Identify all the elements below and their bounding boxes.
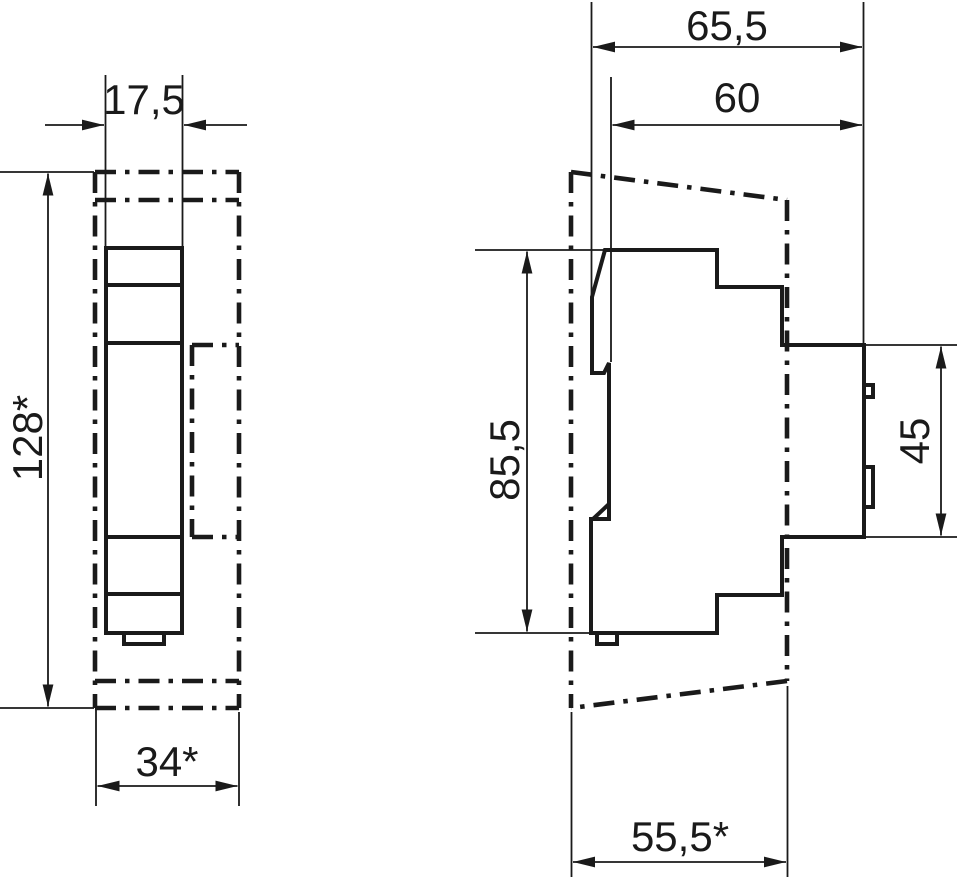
dim-label-height-front: 45 (891, 418, 938, 465)
dim-side-height-body: 85,5 (475, 250, 604, 633)
din-clip-lower-hook (593, 504, 609, 519)
front-device-outline (106, 248, 182, 644)
dim-front-width-bottom: 34* (96, 700, 239, 806)
dim-label-depth-bottom: 55,5* (631, 813, 729, 860)
envelope-bottom-slant-line (571, 681, 787, 708)
device-body (106, 248, 182, 633)
envelope-top-slant-line (571, 172, 787, 200)
dim-label-width-top: 17,5 (103, 76, 185, 123)
dimension-drawing: 17,5 128* 34* (0, 0, 960, 883)
dim-front-width-top: 17,5 (45, 75, 247, 250)
dim-label-height-body: 85,5 (481, 419, 528, 501)
side-view: 65,5 60 85,5 45 55,5* (475, 2, 957, 877)
dim-label-depth-total: 65,5 (686, 2, 768, 49)
dim-label-width-bottom: 34* (135, 738, 198, 785)
dim-side-depth-bottom: 55,5* (572, 686, 788, 877)
drawing-canvas: 17,5 128* 34* (0, 0, 960, 883)
front-view: 17,5 128* 34* (0, 75, 247, 806)
side-device-outline (591, 250, 873, 644)
dim-side-depth-total: 65,5 (592, 2, 864, 344)
device-profile (591, 250, 864, 633)
front-envelope-outline (95, 172, 239, 708)
dim-front-height: 128* (0, 172, 94, 708)
dim-side-height-front: 45 (866, 345, 957, 537)
dim-label-height-overall: 128* (4, 395, 51, 481)
dim-side-depth-body: 60 (611, 74, 862, 362)
dim-label-depth-body: 60 (714, 74, 761, 121)
